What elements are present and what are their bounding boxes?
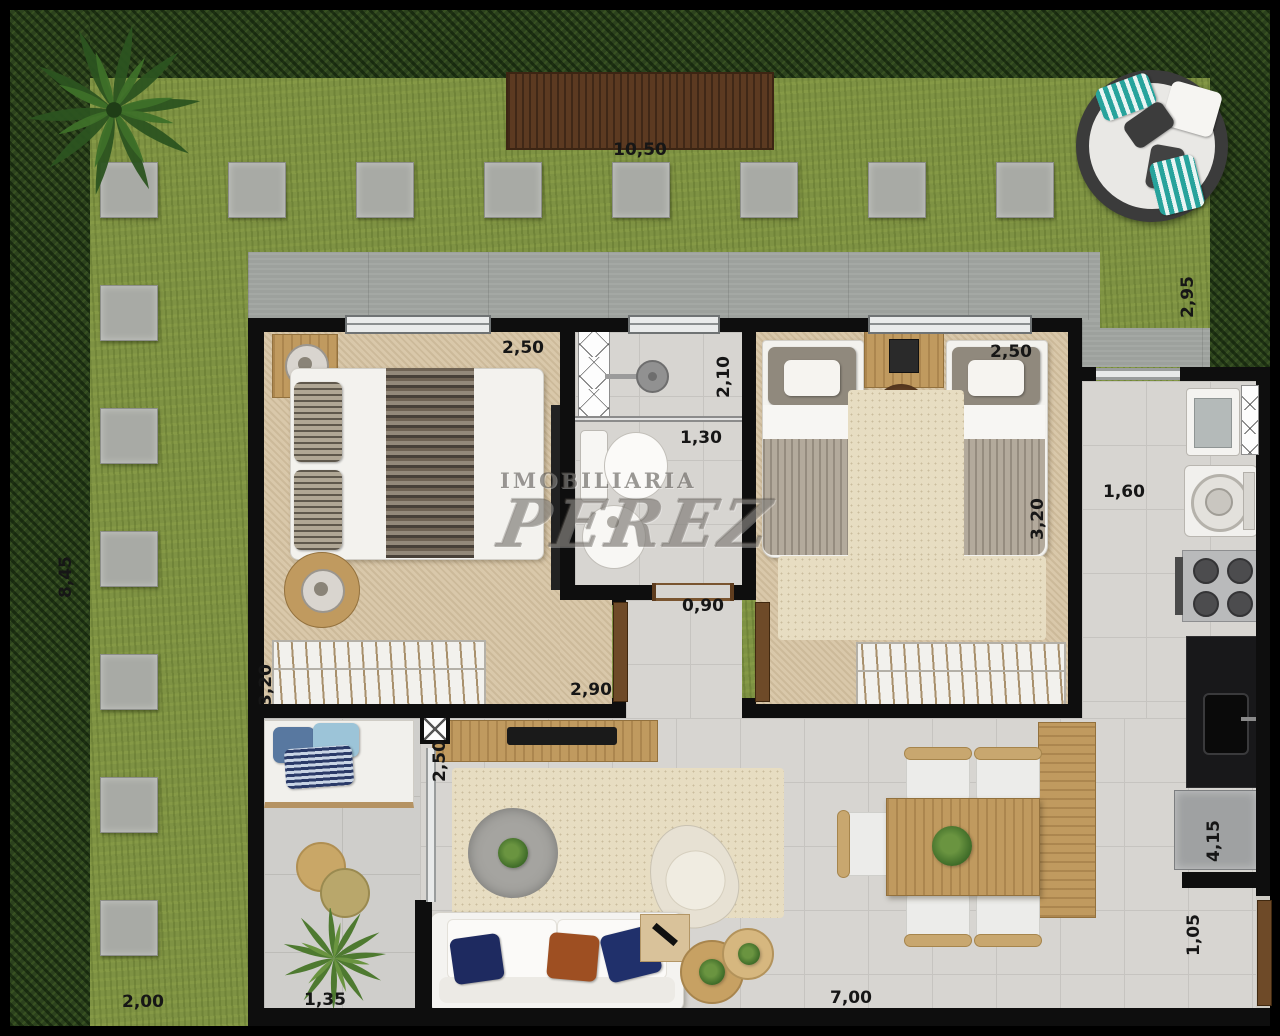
stepping-stone bbox=[356, 162, 414, 218]
dining-chair bbox=[976, 752, 1040, 802]
dim-bedroom2-depth: 3,20 bbox=[1028, 472, 1050, 540]
wall-bedroom2-bottom bbox=[742, 704, 1082, 718]
wall-bathroom-bottom bbox=[560, 585, 654, 600]
bed-runner bbox=[386, 368, 474, 558]
stepping-stone bbox=[100, 408, 158, 464]
floor-plan: 10,50 2,95 8,45 2,00 2,50 3,20 2,90 2 bbox=[0, 0, 1280, 1036]
shower-door bbox=[578, 324, 610, 420]
dim-bedroom2-width: 2,50 bbox=[956, 342, 1032, 362]
shower-head bbox=[636, 360, 669, 393]
dim-patio-width: 1,35 bbox=[294, 990, 356, 1010]
concrete-path-top bbox=[248, 252, 1210, 320]
dim-bathroom-length: 2,10 bbox=[714, 330, 736, 398]
pot-plant bbox=[498, 838, 528, 868]
wall-kitchen-top bbox=[1180, 367, 1270, 381]
wall-patio-stub bbox=[415, 900, 432, 1008]
garden-deck bbox=[506, 72, 774, 150]
wall-kitchen-stub bbox=[1182, 872, 1270, 888]
kitchen-counter-dark bbox=[1186, 636, 1258, 788]
shower-partition bbox=[575, 416, 742, 422]
wall-kitchen-top bbox=[1082, 367, 1096, 381]
dim-garden-bottom: 2,00 bbox=[110, 992, 176, 1012]
sofa-pillow-rust bbox=[546, 932, 600, 982]
stepping-stone bbox=[612, 162, 670, 218]
dining-chair bbox=[976, 892, 1040, 942]
stepping-stone bbox=[100, 531, 158, 587]
wall-bathroom-bedroom2 bbox=[742, 318, 756, 600]
dining-chair bbox=[842, 812, 892, 876]
dim-kitchen-run: 4,15 bbox=[1204, 794, 1228, 862]
wall-bedroom1-bathroom bbox=[560, 318, 575, 600]
toilet-bowl bbox=[604, 432, 668, 500]
wall-bottom bbox=[248, 1008, 1270, 1026]
stepping-stone bbox=[100, 900, 158, 956]
wardrobe-bedroom2 bbox=[856, 642, 1066, 706]
stepping-stone bbox=[100, 654, 158, 710]
dim-garden-right: 2,95 bbox=[1178, 250, 1202, 318]
dining-chair bbox=[906, 892, 970, 942]
palm-tree bbox=[16, 10, 212, 206]
kitchen-island bbox=[1038, 722, 1096, 918]
dim-entry-nook: 1,05 bbox=[1184, 894, 1206, 956]
dim-bedroom1-width: 2,50 bbox=[468, 338, 544, 358]
window-bedroom1 bbox=[345, 315, 491, 334]
dim-living-width: 7,00 bbox=[818, 988, 884, 1008]
dim-garden-top: 10,50 bbox=[592, 140, 688, 160]
stepping-stone bbox=[996, 162, 1054, 218]
window-bathroom bbox=[628, 315, 720, 334]
dim-garden-left: 8,45 bbox=[56, 530, 80, 598]
stove bbox=[1182, 550, 1258, 622]
dim-bathroom-width: 1,30 bbox=[666, 428, 736, 448]
sofa-pillow-navy bbox=[449, 933, 505, 986]
dining-chair bbox=[906, 752, 970, 802]
bed-pillow bbox=[294, 382, 342, 462]
window-kitchen-side bbox=[1241, 385, 1259, 455]
stepping-stone bbox=[740, 162, 798, 218]
stepping-stone bbox=[868, 162, 926, 218]
stepping-stone bbox=[484, 162, 542, 218]
dim-kitchen-hall: 1,60 bbox=[1092, 482, 1156, 502]
stepping-stone bbox=[100, 285, 158, 341]
dim-hall-length: 2,90 bbox=[556, 680, 626, 700]
washing-machine bbox=[1184, 465, 1258, 537]
tv-console bbox=[432, 720, 658, 762]
stepping-stone bbox=[228, 162, 286, 218]
floor-hall bbox=[626, 600, 742, 718]
bed-pillow bbox=[294, 470, 342, 550]
door-entry bbox=[1257, 900, 1272, 1006]
sliding-door-service bbox=[1096, 368, 1180, 380]
rug-bedroom2-foot bbox=[778, 556, 1046, 640]
window-bedroom2 bbox=[868, 315, 1032, 334]
dim-living-tv-wall: 2,50 bbox=[430, 720, 452, 782]
bathroom-sink bbox=[582, 505, 646, 569]
laundry-tub bbox=[1186, 388, 1240, 456]
round-side-table bbox=[284, 552, 360, 628]
dim-bedroom1-closet: 3,20 bbox=[256, 638, 278, 706]
dim-hall-door: 0,90 bbox=[668, 596, 738, 616]
wall-top-jog bbox=[1068, 318, 1082, 381]
wall-bedroom2-kitchen bbox=[1068, 381, 1082, 718]
side-table bbox=[640, 914, 690, 962]
nightstand-bedroom2 bbox=[864, 326, 944, 388]
coffee-table-round bbox=[722, 928, 774, 980]
stepping-stone bbox=[100, 777, 158, 833]
wall-tv-bedroom1 bbox=[551, 405, 560, 590]
table-centerpiece-plant bbox=[932, 826, 972, 866]
door-bedroom2 bbox=[755, 602, 770, 702]
patio-bench bbox=[264, 720, 414, 808]
wardrobe-bedroom1 bbox=[272, 640, 486, 706]
